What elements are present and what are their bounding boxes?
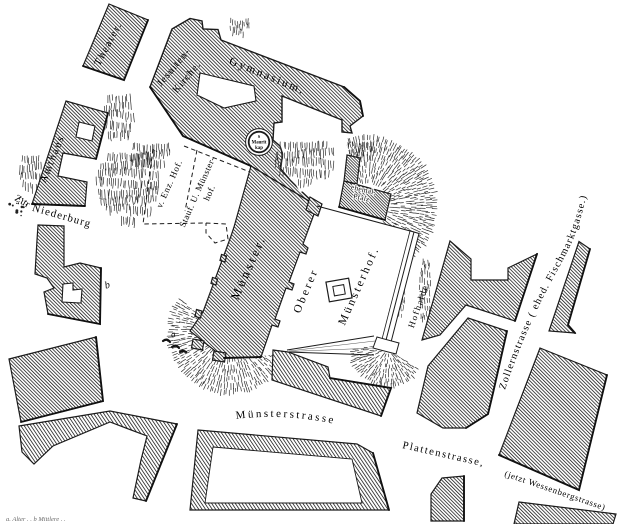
svg-text:kap: kap [255, 146, 263, 151]
svg-text:Maurit: Maurit [252, 141, 267, 146]
svg-text:a. Alter . . b Mittlere .: a. Alter . . b Mittlere . . [6, 516, 66, 523]
